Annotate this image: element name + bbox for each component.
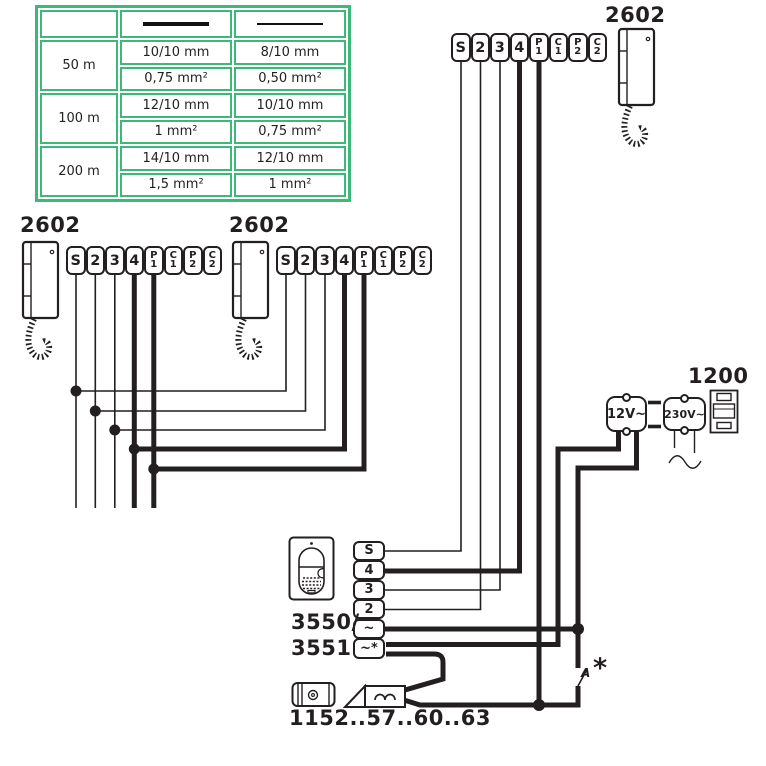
wire-right-s (385, 60, 461, 551)
spec-cell: 10/10 mm (120, 40, 232, 65)
wire-right-2 (385, 60, 481, 610)
handset-icon-left (16, 240, 66, 375)
terminal-s: S (276, 246, 296, 275)
spec-cell: 8/10 mm (234, 40, 346, 65)
terminal-p1: P1 (529, 33, 549, 62)
terminal-4: 4 (335, 246, 355, 275)
terminal-p2: P2 (183, 246, 203, 275)
door-terminal-3: 3 (353, 580, 385, 600)
terminal-c1: C1 (164, 246, 184, 275)
handset-icon-middle (226, 240, 276, 375)
terminal-2: 2 (471, 33, 491, 62)
handset-cord (624, 106, 645, 144)
door-terminal-ac-star: ~* (353, 638, 385, 658)
door-station-model-line2: 3551 (291, 636, 351, 660)
terminal-4: 4 (510, 33, 530, 62)
thin-line-sample (257, 23, 323, 25)
psu-model-label: 1200 (688, 364, 748, 388)
terminal-c2: C2 (588, 33, 608, 62)
handset-icon-right (612, 27, 662, 162)
wire-psu-left (386, 432, 619, 645)
terminal-p2: P2 (393, 246, 413, 275)
terminal-3: 3 (315, 246, 335, 275)
thick-line-header (120, 10, 232, 38)
terminal-c2: C2 (203, 246, 223, 275)
handset-label-right: 2602 (605, 3, 665, 27)
wire-right-3 (385, 60, 500, 590)
wiring-diagram: 50 m 10/10 mm 8/10 mm 0,75 mm² 0,50 mm² … (0, 0, 766, 766)
terminal-2: 2 (86, 246, 106, 275)
spec-cell: 0,75 mm² (234, 120, 346, 145)
door-terminal-4: 4 (353, 560, 385, 580)
door-terminal-s: S (353, 541, 385, 561)
handset-cord (238, 319, 259, 357)
entrance-panel-icon (288, 536, 336, 602)
distance-200m: 200 m (40, 146, 118, 197)
terminal-strip-right: S 2 3 4 P1 C1 P2 C2 (451, 33, 607, 62)
door-terminal-stack: S 4 3 2 ~ ~* (353, 541, 385, 659)
spec-cell: 1,5 mm² (120, 173, 232, 198)
terminal-s: S (451, 33, 471, 62)
lock-model-label: 1152..57..60..63 (289, 706, 491, 730)
terminal-c1: C1 (549, 33, 569, 62)
spec-cell: 14/10 mm (120, 146, 232, 171)
lock-cylinder-icon (291, 680, 337, 708)
psu-230v-label: 230V~ (664, 408, 705, 421)
spec-cell: 12/10 mm (234, 146, 346, 171)
handset-cord (28, 319, 49, 357)
wire-spec-table: 50 m 10/10 mm 8/10 mm 0,75 mm² 0,50 mm² … (35, 5, 351, 202)
terminal-p1: P1 (144, 246, 164, 275)
distance-50m: 50 m (40, 40, 118, 91)
handset-label-middle: 2602 (229, 213, 289, 237)
wire-psu-right (578, 432, 637, 668)
distance-100m: 100 m (40, 93, 118, 144)
terminal-s: S (66, 246, 86, 275)
mains-sine-icon (669, 456, 701, 469)
spec-cell: 1 mm² (120, 120, 232, 145)
thin-line-header (234, 10, 346, 38)
terminal-4: 4 (125, 246, 145, 275)
terminal-2: 2 (296, 246, 316, 275)
terminal-p1: P1 (354, 246, 374, 275)
psu-12v-terminal: 12V~ (606, 396, 647, 432)
spec-cell: 10/10 mm (234, 93, 346, 118)
psu-230v-terminal: 230V~ (663, 397, 706, 431)
switch-a-label: A (581, 666, 590, 680)
psu-12v-label: 12V~ (607, 407, 646, 422)
transformer-icon (709, 389, 739, 434)
handset-label-left: 2602 (20, 213, 80, 237)
table-corner-cell (40, 10, 118, 38)
terminal-strip-left: S 2 3 4 P1 C1 P2 C2 (66, 246, 222, 275)
terminal-c1: C1 (374, 246, 394, 275)
door-station-model-line1: 3550/ (291, 610, 360, 634)
wire-mid-3 (115, 273, 325, 430)
terminal-p2: P2 (568, 33, 588, 62)
terminal-3: 3 (490, 33, 510, 62)
spec-cell: 0,50 mm² (234, 67, 346, 92)
wire-lock-return (404, 686, 578, 705)
spec-cell: 12/10 mm (120, 93, 232, 118)
footnote-asterisk: * (593, 653, 607, 684)
spec-cell: 1 mm² (234, 173, 346, 198)
spec-cell: 0,75 mm² (120, 67, 232, 92)
terminal-c2: C2 (413, 246, 433, 275)
terminal-strip-middle: S 2 3 4 P1 C1 P2 C2 (276, 246, 432, 275)
thick-line-sample (143, 22, 209, 27)
terminal-3: 3 (105, 246, 125, 275)
